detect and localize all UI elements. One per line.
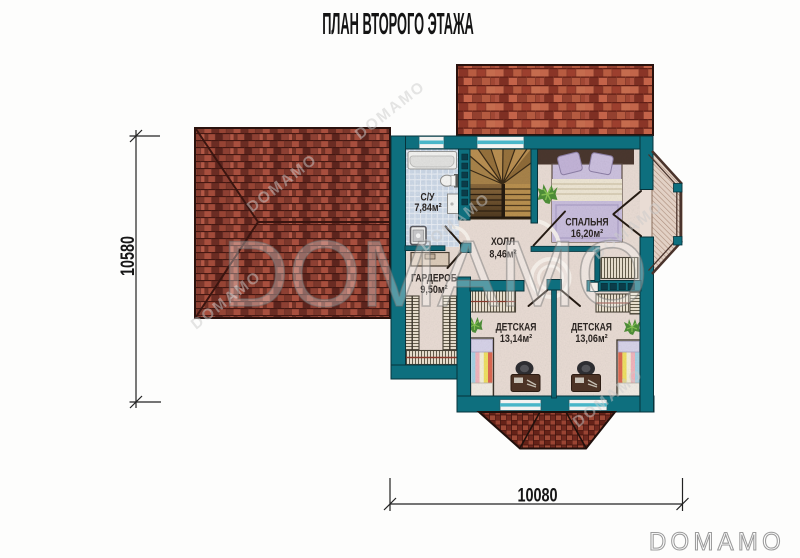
svg-text:10080: 10080 [517,485,557,506]
svg-text:10580: 10580 [117,236,138,276]
svg-text:ПЛАН ВТОРОГО ЭТАЖА: ПЛАН ВТОРОГО ЭТАЖА [322,6,474,40]
svg-text:13,14м²: 13,14м² [500,333,533,345]
svg-text:DOMAMO: DOMAMO [222,221,648,326]
svg-text:7,84м²: 7,84м² [414,202,442,214]
svg-text:13,06м²: 13,06м² [575,333,608,345]
svg-text:DOMAMO: DOMAMO [649,528,785,556]
